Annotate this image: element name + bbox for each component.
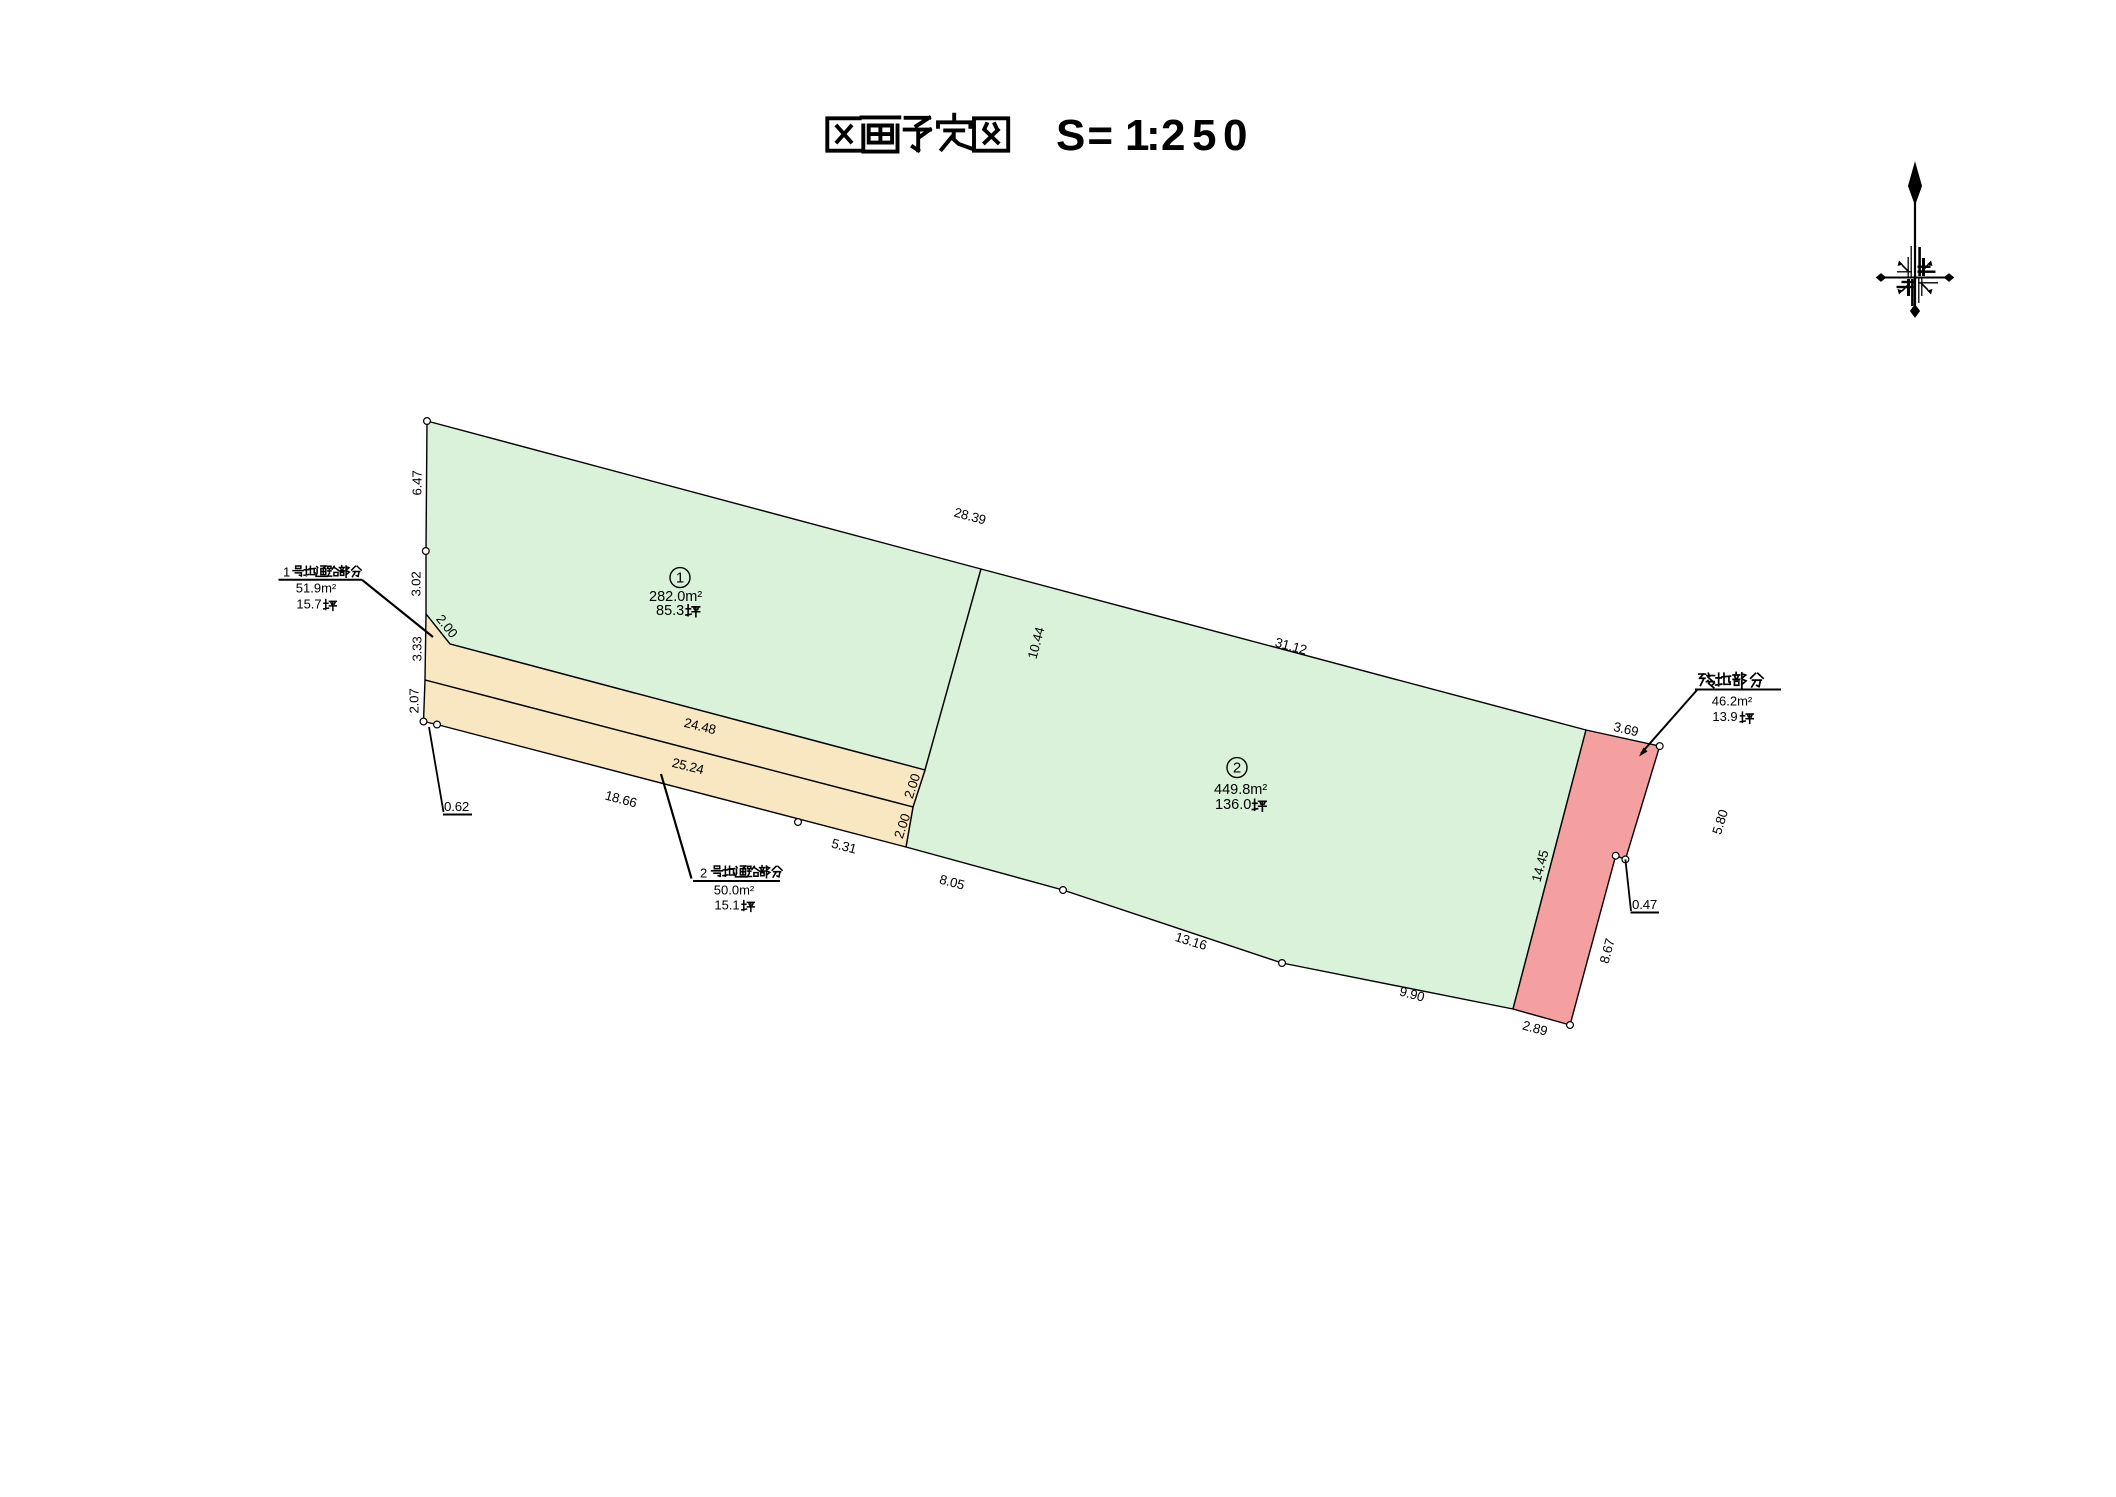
svg-text:2.07: 2.07 bbox=[407, 688, 422, 713]
svg-text:2: 2 bbox=[700, 866, 707, 881]
svg-text:2: 2 bbox=[1233, 760, 1241, 777]
svg-text:85.3: 85.3 bbox=[656, 603, 684, 619]
svg-text:50.0m²: 50.0m² bbox=[714, 883, 755, 898]
svg-text:1: 1 bbox=[676, 570, 684, 587]
svg-text:250: 250 bbox=[1161, 111, 1254, 160]
svg-text:51.9m²: 51.9m² bbox=[296, 581, 337, 596]
svg-text:3.02: 3.02 bbox=[409, 571, 424, 596]
svg-text:3.33: 3.33 bbox=[410, 636, 425, 661]
svg-text:0.62: 0.62 bbox=[444, 799, 469, 814]
svg-text:15.7: 15.7 bbox=[296, 597, 321, 612]
svg-text:S=: S= bbox=[1056, 111, 1115, 160]
svg-text:13.9: 13.9 bbox=[1712, 709, 1737, 724]
svg-text:449.8m²: 449.8m² bbox=[1214, 782, 1267, 798]
svg-text:0.47: 0.47 bbox=[1632, 897, 1657, 912]
svg-text::: : bbox=[1146, 111, 1161, 160]
svg-text:6.47: 6.47 bbox=[410, 470, 425, 495]
svg-text:136.0: 136.0 bbox=[1215, 797, 1251, 813]
svg-text:15.1: 15.1 bbox=[714, 898, 739, 913]
svg-text:1: 1 bbox=[283, 565, 290, 580]
svg-text:46.2m²: 46.2m² bbox=[1712, 694, 1753, 709]
